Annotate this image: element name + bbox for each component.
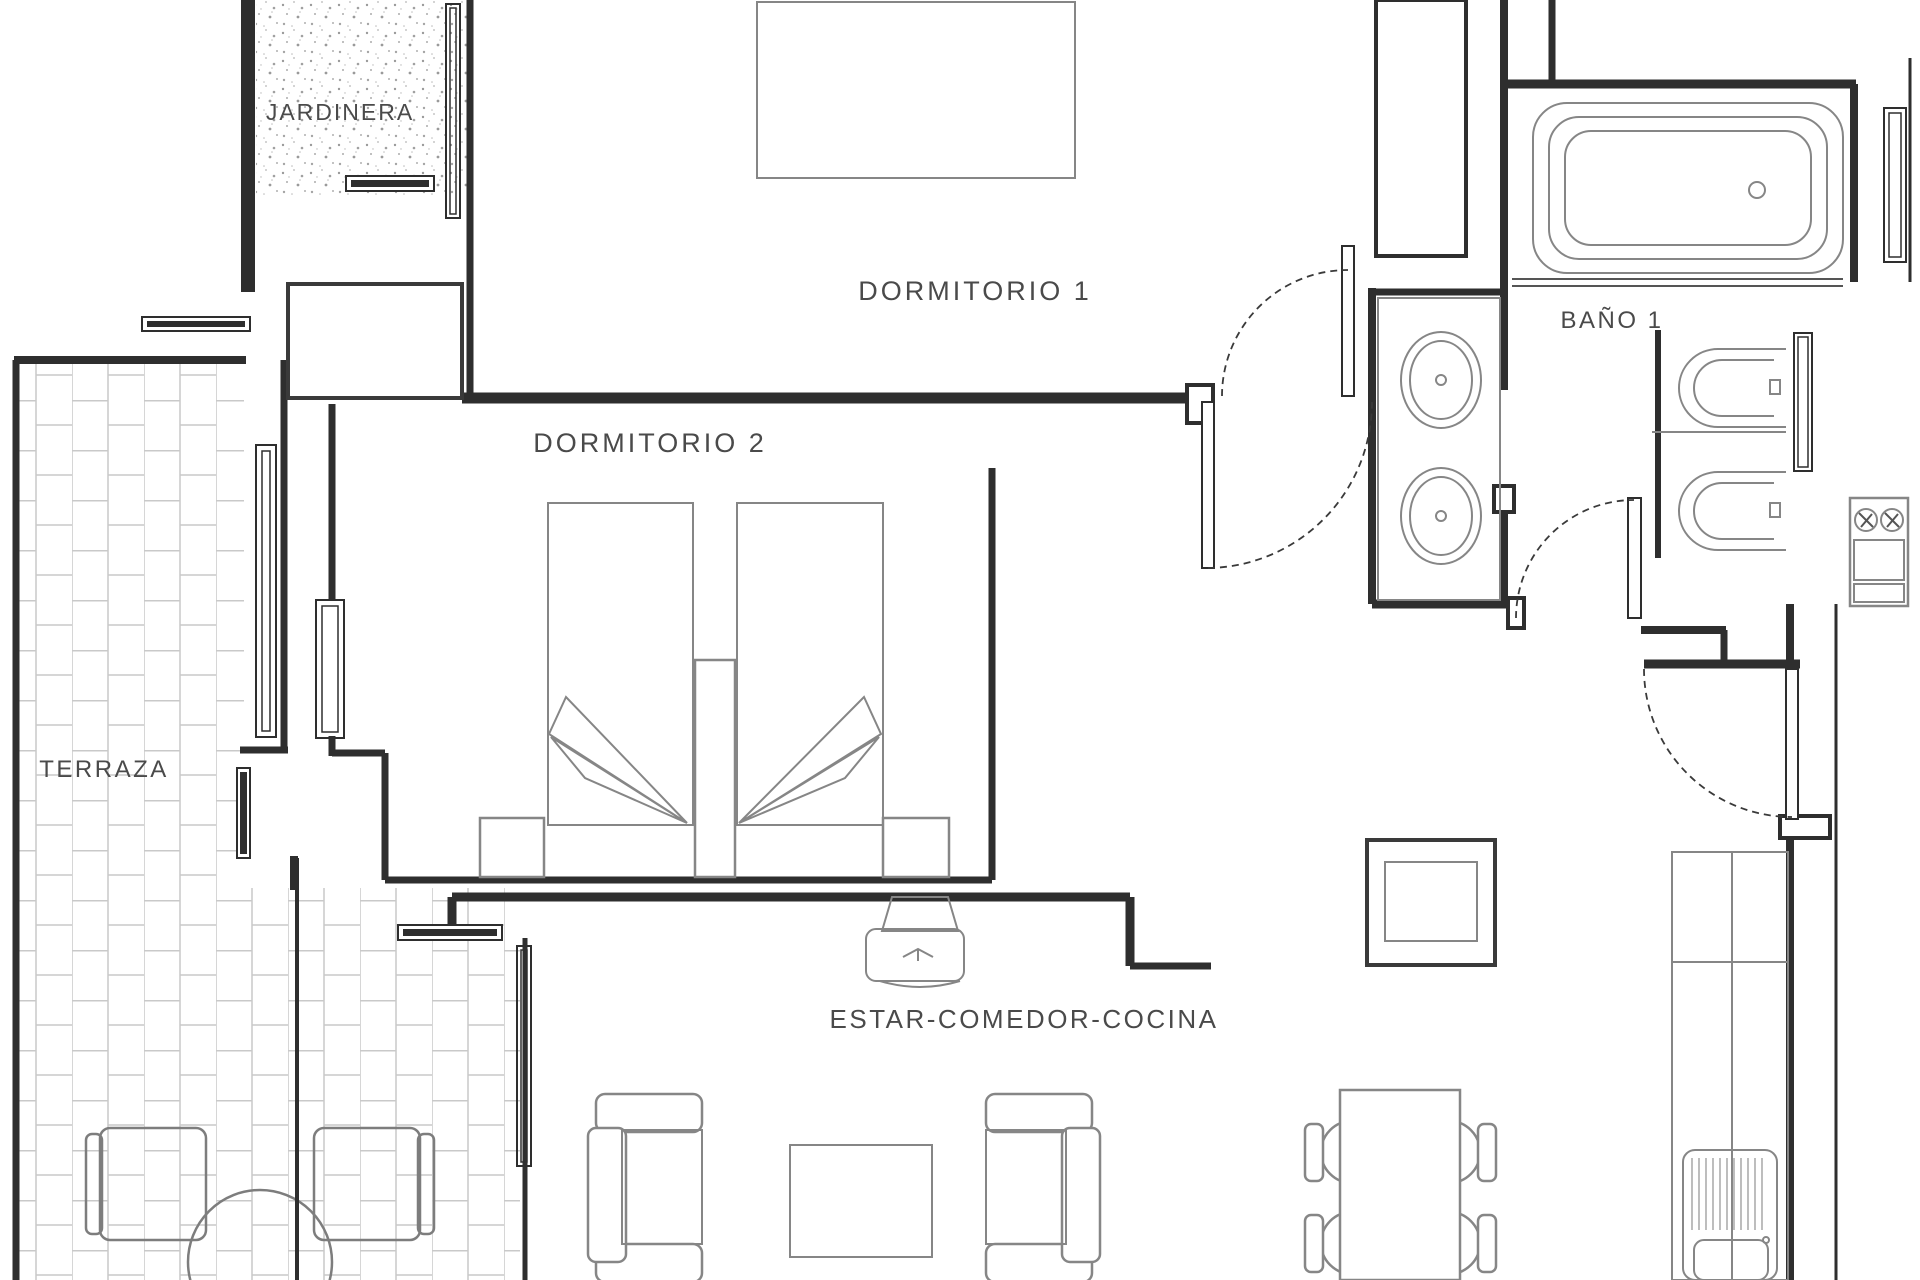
glazed-door-terrace <box>256 445 276 737</box>
duct-shaft <box>1376 0 1466 256</box>
wall <box>332 404 385 880</box>
bidet-icon <box>1679 472 1786 550</box>
bathtub-icon <box>1533 103 1843 273</box>
label-jardinera: JARDINERA <box>266 99 414 125</box>
door-leaf-bedroom1 <box>1342 246 1354 396</box>
door-arc-entrance <box>1644 669 1792 817</box>
nightstand-icon <box>883 818 949 877</box>
glazed-window-bedroom2 <box>316 600 344 738</box>
nightstand-icon <box>695 660 735 877</box>
kitchen-counter <box>1672 852 1788 1280</box>
nightstand-icon <box>480 818 544 877</box>
door-arc-bathroom <box>1516 500 1634 618</box>
kitchen-sink-icon <box>1683 1150 1777 1280</box>
door-arc-bedroom2 <box>1208 402 1372 568</box>
bed-dormitorio1-icon <box>757 2 1075 178</box>
side-table-icon <box>1367 840 1495 965</box>
label-dormitorio-1: DORMITORIO 1 <box>858 276 1092 306</box>
door-leaf-entrance <box>1786 669 1798 819</box>
terrace-tiling <box>18 364 520 1280</box>
floor-plan-svg: JARDINERA DORMITORIO 1 DORMITORIO 2 TERR… <box>0 0 1920 1280</box>
dining-table-icon <box>1340 1090 1460 1280</box>
label-estar-comedor-cocina: ESTAR-COMEDOR-COCINA <box>830 1004 1219 1034</box>
glazed-window-bath <box>1884 108 1906 262</box>
window-bar-icon <box>147 321 245 327</box>
washing-machine-icon <box>1850 498 1908 606</box>
planter-gravel-texture <box>256 0 468 196</box>
glazed-window-toilet <box>1794 333 1812 471</box>
door-jamb <box>1494 486 1514 512</box>
bed-dormitorio2-left-icon <box>548 503 693 825</box>
window-bar-icon <box>240 772 247 854</box>
wall <box>240 360 288 750</box>
dining-set <box>1305 1090 1496 1280</box>
armchair-icon <box>986 1094 1100 1280</box>
fridge-icon <box>1672 852 1788 962</box>
armchair-icon <box>588 1094 702 1280</box>
coffee-table-icon <box>790 1145 932 1257</box>
tv-icon <box>866 897 964 987</box>
floor-plan: JARDINERA DORMITORIO 1 DORMITORIO 2 TERR… <box>0 0 1920 1280</box>
window-bar-icon <box>403 929 497 936</box>
door-leaf-bathroom <box>1628 498 1641 618</box>
bed-dormitorio2-right-icon <box>737 503 883 825</box>
label-terraza: TERRAZA <box>39 756 169 783</box>
window-bar-icon <box>351 180 429 187</box>
wardrobe-icon <box>288 284 462 398</box>
toilet-icon <box>1679 349 1786 427</box>
label-dormitorio-2: DORMITORIO 2 <box>533 428 767 458</box>
vanity-double-sink-icon <box>1378 298 1500 600</box>
tub-platform-edge <box>1512 279 1843 286</box>
label-bano-1: BAÑO 1 <box>1560 307 1663 334</box>
door-leaf-bedroom2 <box>1202 402 1214 568</box>
door-arc-bedroom1 <box>1222 270 1348 396</box>
